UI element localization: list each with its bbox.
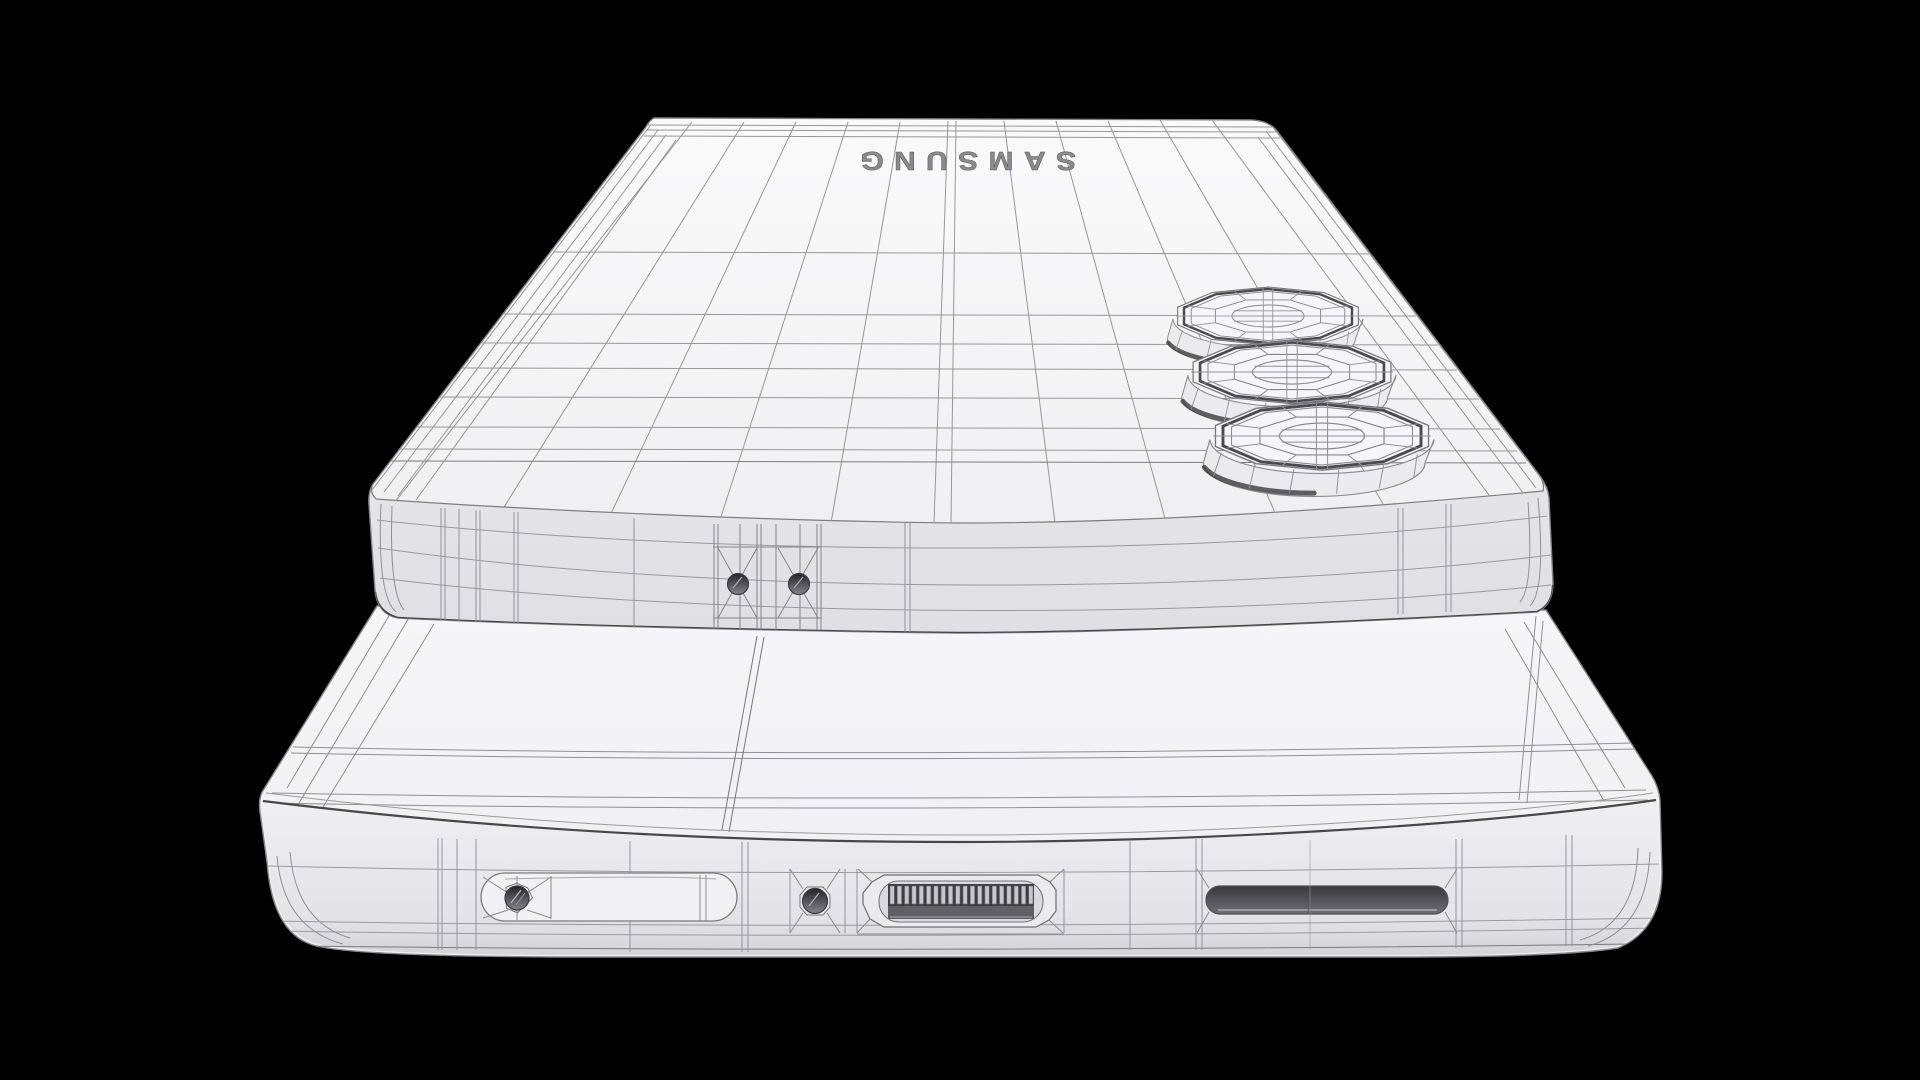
- top-phone-back-wireframe: SAMSUNG: [369, 118, 1553, 633]
- usb-c-port: [857, 869, 1064, 934]
- samsung-logo-text: SAMSUNG: [850, 146, 1076, 176]
- usb-pin-cavity: [888, 884, 1034, 906]
- bottom-phone-edge-wireframe: [260, 606, 1663, 957]
- sim-eject-hole: [505, 886, 529, 910]
- camera-lens-3: [1203, 402, 1434, 497]
- phone-wireframe-scene: SAMSUNG: [0, 0, 1920, 1080]
- wireframe-render-canvas: SAMSUNG: [0, 0, 1920, 1080]
- sim-tray: [481, 873, 737, 921]
